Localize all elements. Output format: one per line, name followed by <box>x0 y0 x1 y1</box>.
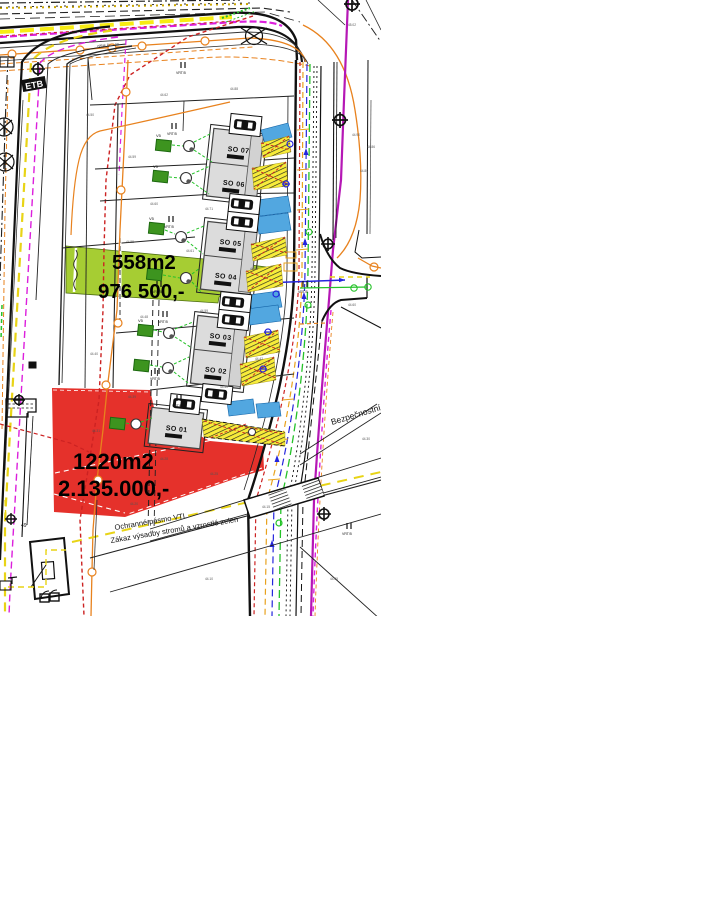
svg-text:44.28: 44.28 <box>160 457 168 461</box>
svg-text:44.20: 44.20 <box>130 502 138 506</box>
svg-text:558m2: 558m2 <box>112 251 176 274</box>
svg-text:V5: V5 <box>153 164 159 169</box>
svg-text:VRT/5: VRT/5 <box>158 320 168 324</box>
svg-text:44.60: 44.60 <box>348 303 356 307</box>
svg-text:V5: V5 <box>149 216 155 221</box>
svg-text:44.80: 44.80 <box>360 169 368 173</box>
svg-text:44.59: 44.59 <box>200 309 208 313</box>
svg-text:44.88: 44.88 <box>230 87 238 91</box>
svg-text:44.30: 44.30 <box>362 437 370 441</box>
svg-text:44.55: 44.55 <box>126 240 134 244</box>
svg-text:44.71: 44.71 <box>205 207 213 211</box>
svg-text:44.10: 44.10 <box>205 577 213 581</box>
svg-text:44.50: 44.50 <box>86 113 94 117</box>
svg-text:44.40: 44.40 <box>90 352 98 356</box>
svg-text:44.15: 44.15 <box>262 505 270 509</box>
svg-text:VRT/5: VRT/5 <box>150 377 160 381</box>
svg-text:44.50: 44.50 <box>250 267 258 271</box>
svg-text:VRT/5: VRT/5 <box>164 225 174 229</box>
svg-text:VRT/5: VRT/5 <box>167 132 177 136</box>
svg-text:45.02: 45.02 <box>348 23 356 27</box>
svg-text:44.61: 44.61 <box>186 249 194 253</box>
svg-text:VRT/5: VRT/5 <box>152 290 162 294</box>
svg-text:44.31: 44.31 <box>92 429 100 433</box>
svg-text:44.50: 44.50 <box>220 385 228 389</box>
svg-text:VRT/5: VRT/5 <box>342 532 352 536</box>
svg-text:44.62: 44.62 <box>160 93 168 97</box>
svg-text:1220m2: 1220m2 <box>73 449 154 474</box>
svg-text:44.90: 44.90 <box>352 133 360 137</box>
svg-text:44.42: 44.42 <box>255 357 263 361</box>
svg-text:V5: V5 <box>156 133 162 138</box>
svg-text:44.60: 44.60 <box>150 202 158 206</box>
svg-text:44.39: 44.39 <box>128 395 136 399</box>
svg-text:44.25: 44.25 <box>210 472 218 476</box>
svg-text:VRT/5: VRT/5 <box>172 404 182 408</box>
svg-text:2.135.000,-: 2.135.000,- <box>58 476 169 501</box>
svg-text:976 500,-: 976 500,- <box>98 280 185 303</box>
svg-text:44.05: 44.05 <box>330 577 338 581</box>
svg-text:VRT/5: VRT/5 <box>176 71 186 75</box>
svg-text:44.86: 44.86 <box>367 145 375 149</box>
svg-text:44.59: 44.59 <box>128 155 136 159</box>
svg-text:VRT/5: VRT/5 <box>298 290 308 294</box>
svg-text:44.48: 44.48 <box>140 315 148 319</box>
